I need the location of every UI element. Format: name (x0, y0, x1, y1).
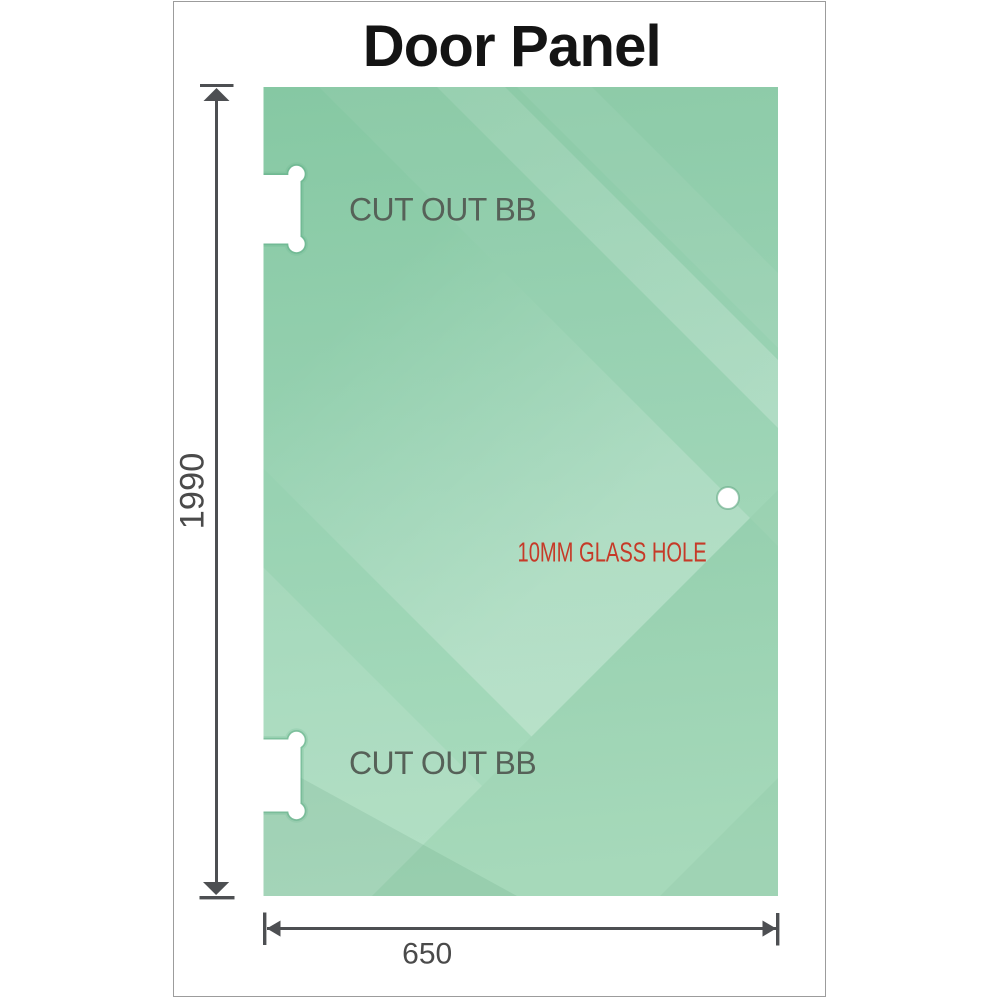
svg-text:CUT OUT BB: CUT OUT BB (349, 745, 536, 781)
svg-text:10MM GLASS HOLE: 10MM GLASS HOLE (518, 537, 707, 568)
svg-text:CUT OUT BB: CUT OUT BB (349, 192, 536, 228)
svg-text:1990: 1990 (174, 453, 212, 530)
svg-text:Door Panel: Door Panel (363, 14, 661, 79)
svg-text:650: 650 (402, 938, 452, 971)
